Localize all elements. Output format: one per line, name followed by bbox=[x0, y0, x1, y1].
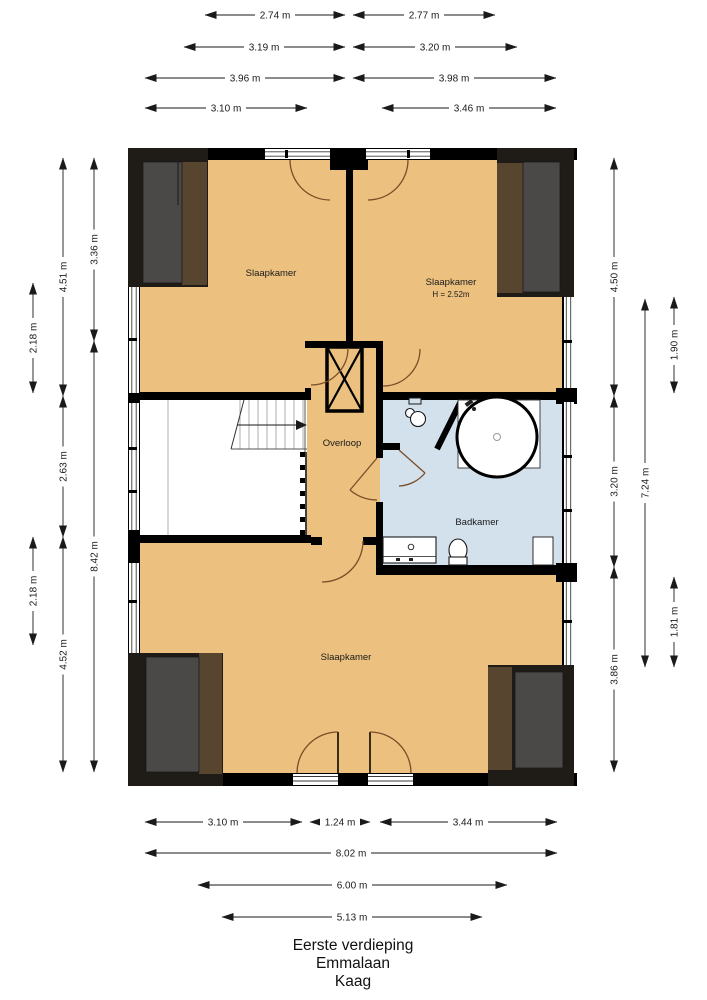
room-label-landing: Overloop bbox=[323, 438, 362, 449]
dim-top-320: 3.20 m bbox=[353, 41, 517, 54]
room-label-bedroom-bottom: Slaapkamer bbox=[321, 652, 372, 663]
dim-left-218-upper: 2.18 m bbox=[27, 283, 40, 393]
dim-right-320: 3.20 m bbox=[608, 396, 621, 567]
dim-top-398: 3.98 m bbox=[353, 72, 556, 85]
wall-shower-room bbox=[376, 443, 400, 450]
svg-text:3.20 m: 3.20 m bbox=[610, 466, 621, 497]
dim-bottom-513: 5.13 m bbox=[222, 911, 482, 924]
round-bathtub bbox=[457, 397, 537, 477]
window-top-left bbox=[265, 149, 330, 159]
bathtub-tap-knob bbox=[472, 407, 476, 411]
dim-right-190: 1.90 m bbox=[668, 297, 681, 393]
wall-stair-top bbox=[128, 392, 311, 400]
dormer-top-left bbox=[128, 148, 208, 287]
svg-text:1.81 m: 1.81 m bbox=[670, 607, 681, 638]
french-door-opening-left bbox=[293, 774, 338, 785]
svg-text:6.00 m: 6.00 m bbox=[337, 881, 368, 892]
svg-text:2.74 m: 2.74 m bbox=[260, 11, 291, 22]
dim-left-452: 4.52 m bbox=[57, 537, 70, 772]
svg-text:2.18 m: 2.18 m bbox=[29, 576, 40, 607]
wall-stair-bottom bbox=[128, 535, 311, 543]
dim-top-310: 3.10 m bbox=[145, 102, 307, 115]
svg-text:8.02 m: 8.02 m bbox=[336, 849, 367, 860]
svg-text:3.96 m: 3.96 m bbox=[230, 74, 261, 85]
dormer-top-right bbox=[497, 148, 574, 297]
title-floor: Eerste verdieping bbox=[293, 937, 414, 954]
svg-text:3.46 m: 3.46 m bbox=[454, 104, 485, 115]
bathroom-duct-notch bbox=[533, 537, 553, 565]
dim-left-218-lower: 2.18 m bbox=[27, 537, 40, 645]
dim-left-842: 8.42 m bbox=[88, 341, 101, 772]
svg-text:5.13 m: 5.13 m bbox=[337, 913, 368, 924]
svg-text:3.10 m: 3.10 m bbox=[211, 104, 242, 115]
svg-text:4.52 m: 4.52 m bbox=[59, 639, 70, 670]
toilet bbox=[449, 539, 467, 565]
vanity-cabinet bbox=[383, 537, 436, 563]
room-label-bedroom-top-right: Slaapkamer bbox=[426, 277, 477, 288]
window-left-upper bbox=[129, 287, 139, 393]
svg-text:2.18 m: 2.18 m bbox=[29, 323, 40, 354]
stairwell-floor bbox=[140, 400, 307, 537]
dim-bottom-802: 8.02 m bbox=[145, 847, 557, 860]
room-label-bathroom: Badkamer bbox=[455, 517, 498, 528]
wall-landing-right-upper bbox=[376, 341, 383, 458]
dim-bottom-344: 3.44 m bbox=[380, 816, 557, 829]
floorplan-drawing: Slaapkamer Slaapkamer H = 2.52m Overloop… bbox=[0, 0, 707, 1000]
dimensions-top: 2.74 m 2.77 m 3.19 m 3.20 m 3.96 m 3.98 … bbox=[145, 9, 556, 115]
dim-top-277: 2.77 m bbox=[353, 9, 495, 22]
svg-text:4.51 m: 4.51 m bbox=[59, 262, 70, 293]
dim-right-724: 7.24 m bbox=[639, 299, 652, 667]
svg-text:3.98 m: 3.98 m bbox=[439, 74, 470, 85]
wall-bathroom-bottom bbox=[376, 565, 574, 575]
wall-landing-bottom-left bbox=[311, 537, 322, 545]
svg-text:1.90 m: 1.90 m bbox=[670, 330, 681, 361]
wall-landing-bottom-right bbox=[363, 537, 378, 545]
dim-right-450: 4.50 m bbox=[608, 158, 621, 396]
svg-text:1.24 m: 1.24 m bbox=[325, 818, 356, 829]
window-left-stairwell bbox=[129, 403, 139, 530]
dimensions-right: 4.50 m 3.20 m 3.86 m 7.24 m bbox=[608, 158, 681, 772]
svg-text:3.86 m: 3.86 m bbox=[610, 654, 621, 685]
window-right-upper bbox=[564, 297, 574, 388]
window-right-lower bbox=[564, 582, 574, 665]
dim-top-319: 3.19 m bbox=[184, 41, 345, 54]
dimensions-bottom: 3.10 m 1.24 m 3.44 m 8.02 m 6.00 m 5.13 … bbox=[145, 816, 557, 924]
wall-corner-block-right-low bbox=[556, 563, 577, 582]
wall-corner-block-right-mid bbox=[556, 388, 577, 404]
wall-landing-right-lower bbox=[376, 502, 383, 573]
dim-left-451: 4.51 m bbox=[57, 158, 70, 396]
window-left-lower bbox=[129, 563, 139, 653]
dim-top-274: 2.74 m bbox=[205, 9, 345, 22]
dormer-bottom-left bbox=[128, 653, 223, 786]
title-block: Eerste verdieping Emmalaan Kaag bbox=[293, 937, 414, 990]
dim-right-181: 1.81 m bbox=[668, 577, 681, 667]
wall-bedroom-divider bbox=[346, 158, 353, 344]
dimensions-left: 3.36 m 8.42 m 4.51 m 2.63 m bbox=[27, 158, 101, 772]
dormer-bottom-right bbox=[488, 665, 574, 786]
svg-text:2.63 m: 2.63 m bbox=[59, 451, 70, 482]
title-city: Kaag bbox=[335, 973, 371, 990]
french-door-opening-right bbox=[368, 774, 413, 785]
title-street: Emmalaan bbox=[316, 955, 390, 972]
svg-text:2.77 m: 2.77 m bbox=[409, 11, 440, 22]
svg-text:3.36 m: 3.36 m bbox=[90, 234, 101, 265]
svg-text:4.50 m: 4.50 m bbox=[610, 262, 621, 293]
wall-bathroom-top bbox=[376, 392, 574, 400]
svg-text:3.19 m: 3.19 m bbox=[249, 43, 280, 54]
svg-text:3.10 m: 3.10 m bbox=[208, 818, 239, 829]
svg-text:7.24 m: 7.24 m bbox=[641, 468, 652, 499]
window-right-bathroom bbox=[564, 402, 574, 563]
svg-text:3.20 m: 3.20 m bbox=[420, 43, 451, 54]
floorplan-page: Slaapkamer Slaapkamer H = 2.52m Overloop… bbox=[0, 0, 707, 1000]
dim-right-386: 3.86 m bbox=[608, 567, 621, 772]
wall-landing-left-stub bbox=[305, 388, 311, 400]
dim-left-336: 3.36 m bbox=[88, 158, 101, 341]
dim-left-263: 2.63 m bbox=[57, 396, 70, 537]
dim-bottom-600: 6.00 m bbox=[198, 879, 507, 892]
room-label-bedroom-top-right-height: H = 2.52m bbox=[432, 290, 469, 299]
room-label-bedroom-top-left: Slaapkamer bbox=[246, 268, 297, 279]
window-top-right bbox=[366, 149, 430, 159]
dim-top-346: 3.46 m bbox=[382, 102, 556, 115]
dim-bottom-124: 1.24 m bbox=[310, 816, 370, 829]
dim-bottom-310: 3.10 m bbox=[145, 816, 302, 829]
dim-top-396: 3.96 m bbox=[145, 72, 345, 85]
svg-text:8.42 m: 8.42 m bbox=[90, 541, 101, 572]
svg-text:3.44 m: 3.44 m bbox=[453, 818, 484, 829]
